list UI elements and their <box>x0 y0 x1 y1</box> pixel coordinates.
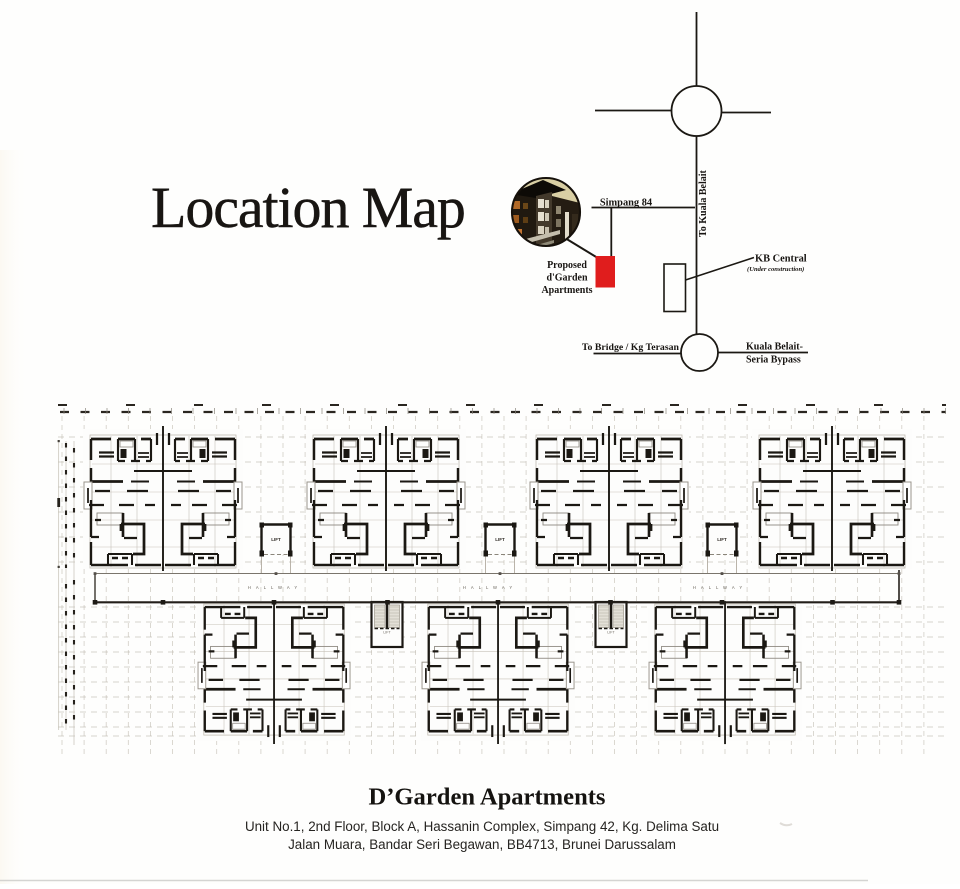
svg-text:Unit No.1, 2nd Floor, Block A,: Unit No.1, 2nd Floor, Block A, Hassanin … <box>245 819 719 834</box>
svg-text:To Kuala Belait: To Kuala Belait <box>698 169 709 237</box>
svg-text:Simpang 84: Simpang 84 <box>600 198 652 209</box>
svg-text:D’Garden Apartments: D’Garden Apartments <box>368 784 605 811</box>
svg-text:Kuala Belait-: Kuala Belait- <box>746 342 803 353</box>
svg-text:HALLWAY: HALLWAY <box>463 585 517 590</box>
svg-text:KB Central: KB Central <box>755 254 807 265</box>
svg-text:Proposed: Proposed <box>547 260 587 271</box>
svg-text:(Under construction): (Under construction) <box>747 266 804 273</box>
svg-text:Seria Bypass: Seria Bypass <box>746 355 801 366</box>
svg-text:HALLWAY: HALLWAY <box>248 585 302 590</box>
svg-text:Apartments: Apartments <box>541 285 592 296</box>
svg-text:Jalan Muara, Bandar Seri Begaw: Jalan Muara, Bandar Seri Begawan, BB4713… <box>288 837 676 852</box>
svg-text:Location Map: Location Map <box>151 175 465 240</box>
svg-text:d'Garden: d'Garden <box>546 273 588 284</box>
svg-text:HALLWAY: HALLWAY <box>693 585 747 590</box>
svg-text:To Bridge / Kg Terasan: To Bridge / Kg Terasan <box>582 342 680 353</box>
